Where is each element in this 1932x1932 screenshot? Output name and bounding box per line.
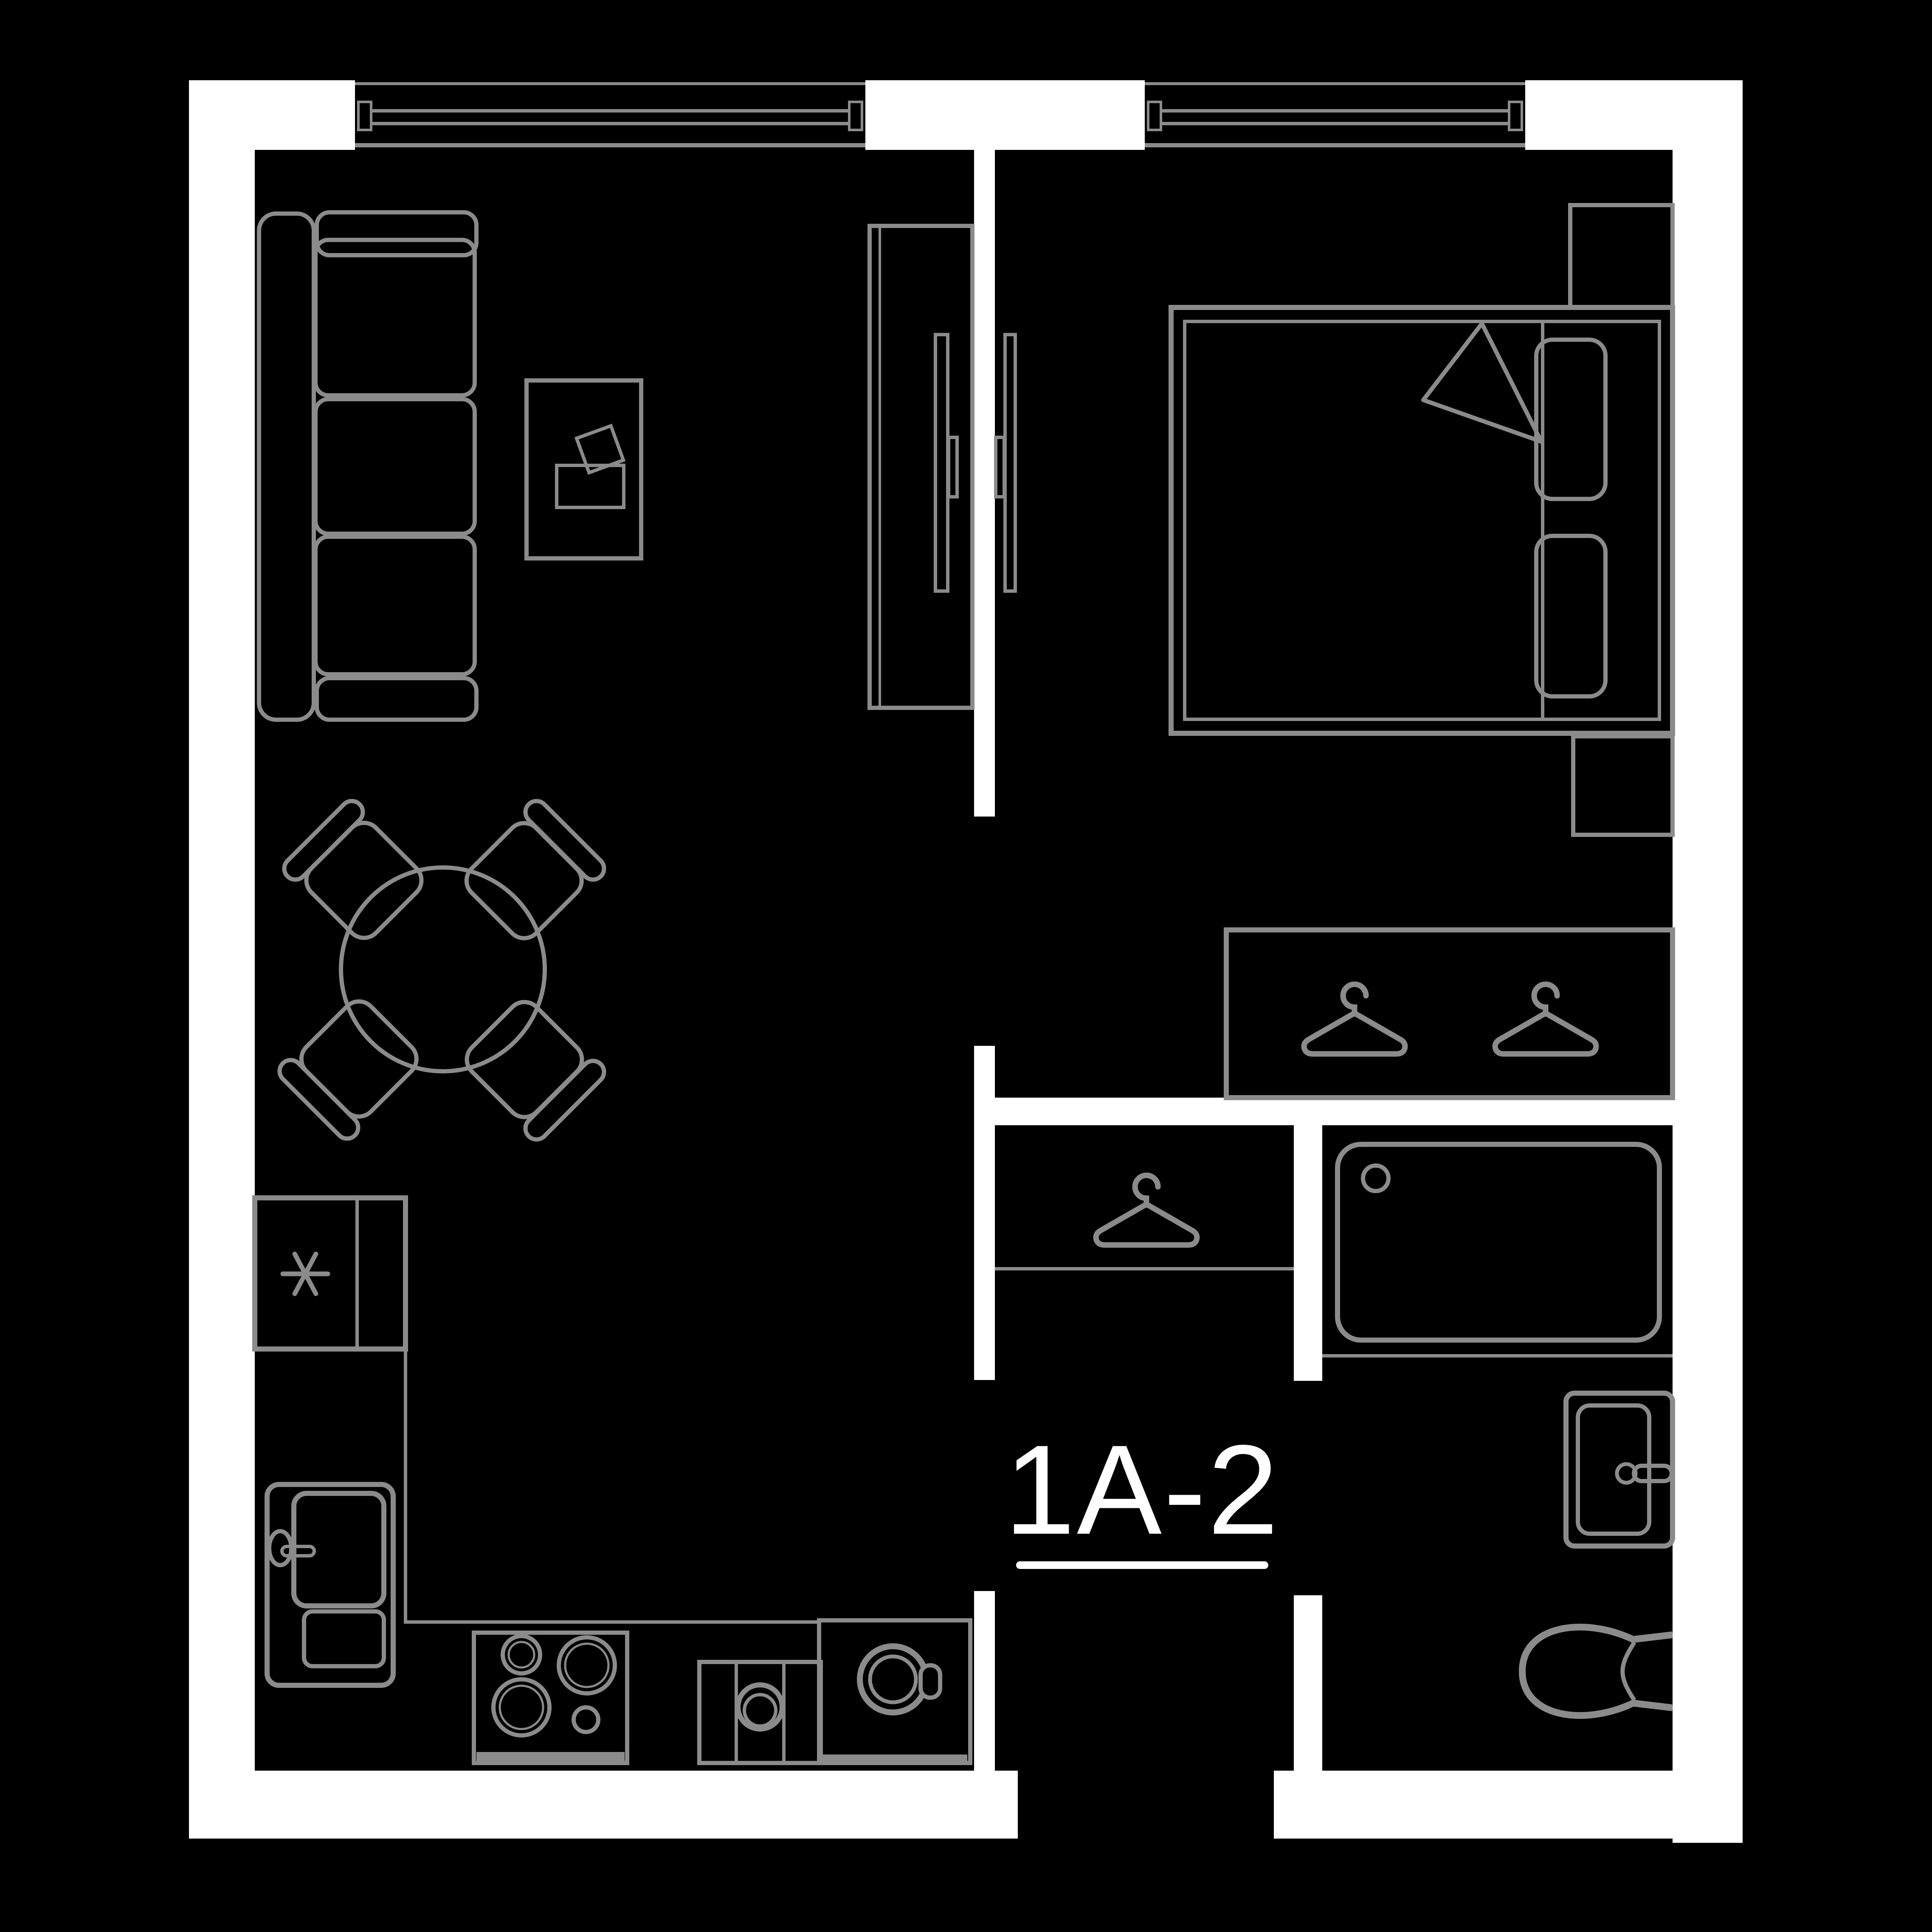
wall-bedroom-bottom [995,1098,1673,1125]
wall-bottom-left-segment [189,1771,1018,1839]
floor-plan: 1A-2 [0,0,1932,1932]
wall-partition-middle [974,1046,995,1380]
wall-bathroom-upper [1294,1125,1322,1381]
wall-bottom-right-segment [1274,1771,1743,1839]
wall-top-pier [865,80,1145,150]
window-frame-end [849,102,862,130]
floor-plan-page: 1A-2 [0,0,1932,1932]
wall-left [189,80,255,1839]
window-frame-end [358,102,371,130]
wall-right [1673,80,1743,1843]
unit-label: 1A-2 [1004,1418,1280,1565]
wall-partition-upper [974,150,995,817]
washer-door-handle [921,1665,940,1698]
unit-label-text: 1A-2 [1004,1418,1280,1561]
wall-bathroom-lower [1294,1595,1322,1771]
wall-partition-lower [974,1591,995,1771]
window-frame-end [1148,102,1161,130]
window-frame-end [1509,102,1522,130]
background [0,0,1932,1932]
